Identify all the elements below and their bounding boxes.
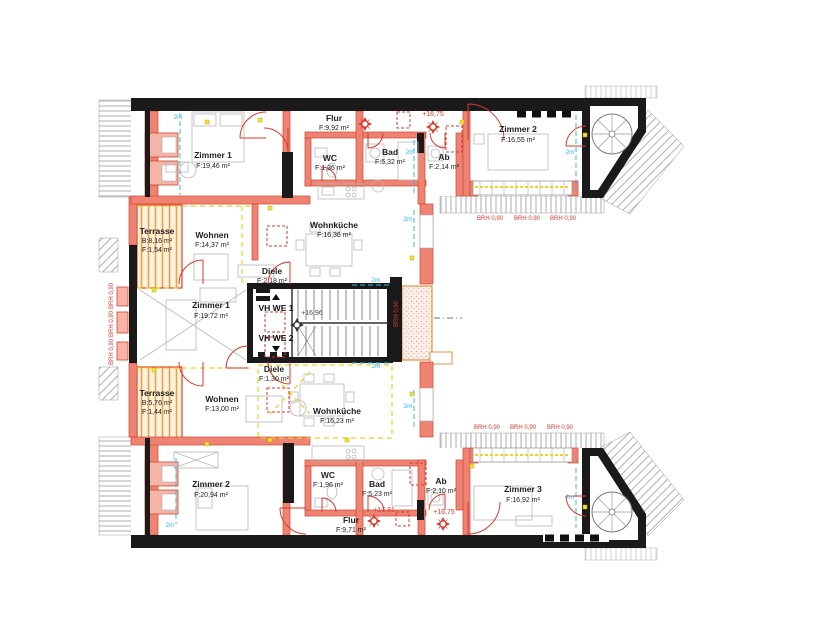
room-label-we1-wc: WC: [323, 153, 337, 163]
room-label-we2-zimmer2: Zimmer 2: [192, 479, 230, 489]
room-area-we1-wc: F:1,36 m²: [315, 165, 346, 172]
level-top: +16,75: [422, 111, 444, 118]
room-label-we2-diele: Diele: [264, 364, 285, 374]
brh-label-vertical: BRH 0,90: [109, 282, 115, 309]
room-area-we1-ab: F:2,14 m²: [429, 164, 460, 171]
room-label-we2-ab: Ab: [435, 476, 446, 486]
room-label-we1-diele: Diele: [262, 266, 283, 276]
two-m-label: 2m: [403, 403, 412, 410]
wing-window-bands: [473, 181, 572, 462]
two-m-label: 2m: [371, 277, 380, 284]
room-label-we2-zimmer1: Zimmer 1: [192, 300, 230, 310]
spiral-staircase-top: [592, 114, 632, 154]
room-label-we1-wohnen: Wohnen: [195, 230, 228, 240]
brh-label-vertical: BRH 0,90: [109, 338, 115, 365]
room-b-we1-terrasse: B:8,16 m²: [142, 238, 173, 245]
stair-core: [250, 286, 390, 360]
two-m-label: 2m: [565, 494, 574, 501]
room-b-we2-terrasse: B:5,76 m²: [142, 400, 173, 407]
two-m-label: 2m: [405, 149, 414, 156]
room-label-we2-terrasse: Terrasse: [140, 388, 175, 398]
level-bottom-left: +17,31: [373, 507, 395, 514]
room-area-we2-diele: F:1,30 m²: [259, 376, 290, 383]
stair-label-vh-we2: VH WE 2: [259, 333, 294, 343]
brh-label: BRH 0,90: [477, 216, 504, 222]
room-label-we2-wohnen: Wohnen: [205, 394, 238, 404]
brh-label-vertical: BRH 0,90: [109, 310, 115, 337]
two-m-label: 2m: [371, 363, 380, 370]
room-area-we1-zimmer2: F:16,55 m²: [501, 137, 536, 144]
stair-label-vh-we1: VH WE 1: [259, 303, 294, 313]
brh-label-vertical: BRH 0,90: [394, 300, 400, 327]
room-area-we2-zimmer2: F:20,94 m²: [194, 492, 229, 499]
level-mid: +16,96: [301, 310, 323, 317]
room-label-we1-flur: Flur: [326, 113, 343, 123]
room-area-we1-wohnen: F:14,37 m²: [195, 242, 230, 249]
room-label-we2-bad: Bad: [369, 479, 385, 489]
room-label-we2-wohnkueche: Wohnküche: [313, 406, 361, 416]
room-area-we2-bad: F:5,23 m²: [362, 491, 393, 498]
room-label-we2-zimmer3: Zimmer 3: [504, 484, 542, 494]
room-area-we2-terrasse: F:1,44 m²: [142, 409, 173, 416]
room-label-we1-wohnkueche: Wohnküche: [310, 220, 358, 230]
brh-label: BRH 0,90: [510, 425, 537, 431]
room-label-we1-ab: Ab: [438, 152, 449, 162]
room-area-we2-wohnen: F:13,00 m²: [205, 406, 240, 413]
level-bottom-right: +16,75: [433, 509, 455, 516]
room-area-we2-wohnkueche: F:16,23 m²: [320, 418, 355, 425]
brh-label: BRH 0,90: [550, 216, 577, 222]
courtyard-balcony: [402, 286, 462, 364]
two-m-label: 2m: [565, 149, 574, 156]
room-area-we2-zimmer3: F:16,92 m²: [506, 497, 541, 504]
room-area-we1-diele: F:2,18 m²: [257, 278, 288, 285]
spiral-staircase-bottom: [592, 492, 632, 532]
two-m-label: 2m: [403, 216, 412, 223]
room-area-we2-zimmer1: F:19,72 m²: [194, 313, 229, 320]
floor-plan: Zimmer 1 F:19,46 m² Flur F:9,92 m² WC F:…: [0, 0, 840, 641]
room-area-we1-terrasse: F:1,54 m²: [142, 247, 173, 254]
room-label-we1-terrasse: Terrasse: [140, 226, 175, 236]
room-label-we1-bad: Bad: [382, 147, 398, 157]
room-label-we2-wc: WC: [321, 470, 335, 480]
room-label-we2-flur: Flur: [343, 515, 360, 525]
room-area-we2-ab: F:2,10 m²: [426, 488, 457, 495]
room-area-we2-flur: F:9,71 m²: [336, 527, 367, 534]
room-area-we1-bad: F:5,32 m²: [375, 159, 406, 166]
room-label-we1-zimmer2: Zimmer 2: [499, 124, 537, 134]
brh-label: BRH 0,90: [474, 425, 501, 431]
two-m-label: 2m: [165, 522, 174, 529]
room-label-we1-zimmer1: Zimmer 1: [194, 150, 232, 160]
room-area-we1-flur: F:9,92 m²: [319, 125, 350, 132]
two-m-label: 2m: [173, 114, 182, 121]
floor-plan-canvas: Zimmer 1 F:19,46 m² Flur F:9,92 m² WC F:…: [0, 0, 840, 641]
brh-label: BRH 0,90: [514, 216, 541, 222]
brh-label: BRH 0,90: [547, 425, 574, 431]
room-area-we1-wohnkueche: F:16,36 m²: [317, 232, 352, 239]
room-area-we1-zimmer1: F:19,46 m²: [196, 163, 231, 170]
room-area-we2-wc: F:1,96 m²: [313, 482, 344, 489]
